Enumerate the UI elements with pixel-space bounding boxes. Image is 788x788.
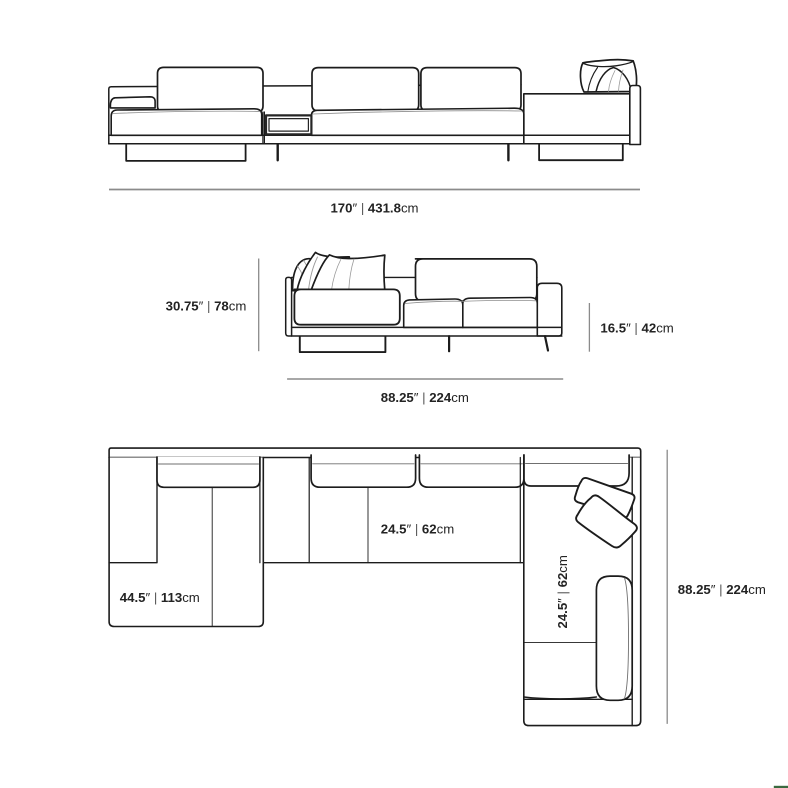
svg-text:170″ | 431.8cm: 170″ | 431.8cm (330, 200, 418, 215)
svg-text:24.5″ | 62cm: 24.5″ | 62cm (555, 555, 570, 628)
svg-text:24.5″ | 62cm: 24.5″ | 62cm (381, 522, 454, 537)
svg-text:88.25″ | 224cm: 88.25″ | 224cm (381, 390, 469, 405)
svg-text:16.5″ | 42cm: 16.5″ | 42cm (600, 320, 673, 335)
svg-text:44.5″ | 113cm: 44.5″ | 113cm (120, 590, 200, 605)
svg-text:88.25″ | 224cm: 88.25″ | 224cm (678, 582, 766, 597)
svg-text:30.75″ | 78cm: 30.75″ | 78cm (166, 298, 247, 313)
